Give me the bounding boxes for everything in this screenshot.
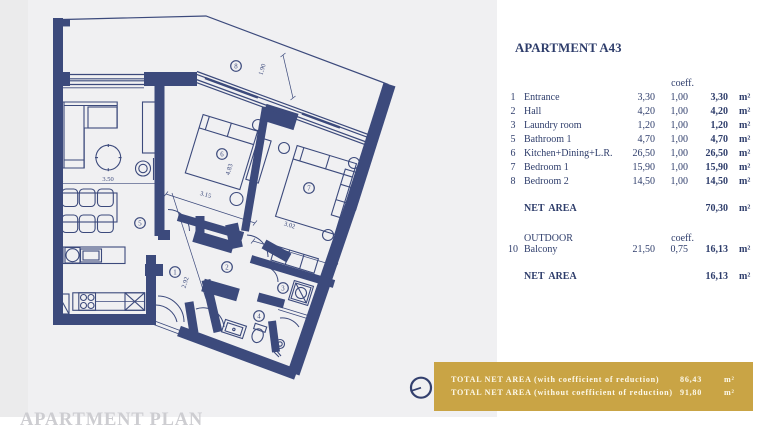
svg-text:6: 6: [220, 152, 224, 159]
svg-text:2: 2: [225, 265, 229, 272]
svg-text:8: 8: [234, 64, 238, 71]
svg-text:7: 7: [307, 186, 311, 193]
svg-text:5: 5: [138, 221, 142, 228]
svg-text:1.90: 1.90: [258, 63, 268, 76]
svg-text:4.83: 4.83: [225, 163, 235, 176]
svg-text:1: 1: [173, 270, 176, 277]
svg-text:3.15: 3.15: [199, 190, 212, 200]
svg-text:3.50: 3.50: [102, 176, 113, 183]
svg-text:3: 3: [281, 286, 285, 293]
svg-text:2.92: 2.92: [181, 276, 191, 289]
svg-text:4: 4: [257, 314, 261, 321]
